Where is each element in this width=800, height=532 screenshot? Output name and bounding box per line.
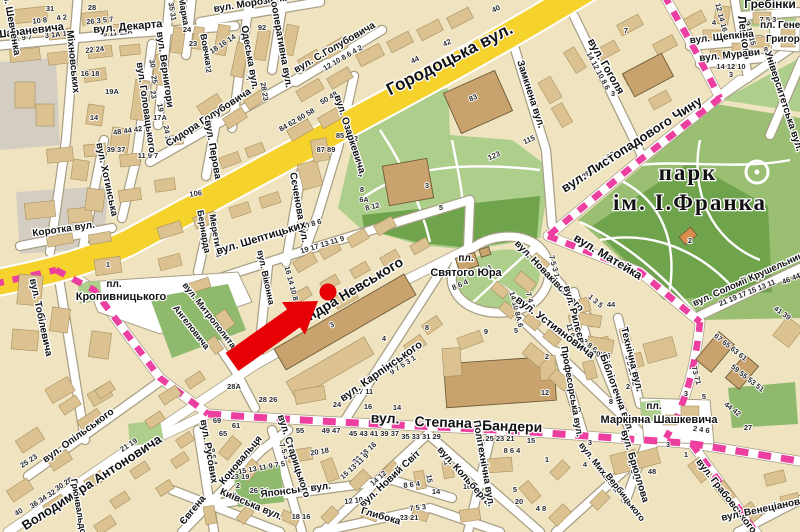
building — [49, 307, 70, 333]
house-number: 3 — [729, 70, 733, 79]
house-number: 25 — [149, 75, 159, 85]
house-number: 18 16 — [292, 512, 311, 521]
house-number: 1 — [684, 450, 688, 459]
house-number: 23 21 — [400, 513, 419, 522]
house-number: 3 — [666, 440, 670, 449]
building — [442, 347, 462, 376]
house-number: 49 47 — [322, 426, 341, 435]
house-number: 8 — [360, 185, 364, 194]
house-number: 31 — [46, 4, 54, 13]
house-number: 20 — [515, 497, 523, 506]
building — [24, 200, 56, 219]
house-number: 92 — [258, 23, 266, 32]
house-number: 16 18 — [81, 69, 100, 78]
house-number: 28 26 — [259, 395, 278, 404]
house-number: 48 — [648, 467, 656, 476]
house-number: 5 — [514, 326, 518, 335]
house-number: 4 8 — [536, 504, 546, 513]
house-number: 1 — [106, 260, 110, 269]
house-number: 14 — [90, 113, 99, 122]
house-number: 87 89 — [317, 145, 336, 154]
house-number: 8 — [425, 323, 429, 332]
house-number: 39 37 — [107, 145, 126, 154]
street-label: пл. — [458, 253, 473, 264]
building — [11, 329, 39, 351]
house-number: 2 — [236, 481, 240, 490]
house-number: 69 — [213, 416, 221, 425]
house-number: 27 — [744, 423, 752, 432]
building — [15, 82, 35, 108]
street-label: пл. — [106, 279, 121, 290]
street-label: Степана — [414, 413, 472, 431]
house-number: 7 — [624, 26, 628, 35]
house-number: 106 — [189, 188, 203, 199]
house-number: 45 43 41 39 37 — [349, 429, 399, 438]
house-number: 2 — [545, 352, 549, 361]
location-dot-icon[interactable] — [320, 284, 337, 301]
street-label: Гребінки — [744, 0, 796, 11]
house-number: 24 — [183, 25, 192, 34]
building — [120, 44, 141, 56]
house-number: 44 — [607, 300, 616, 309]
street-label: ім. І.Франка — [613, 190, 767, 215]
house-number: 9 — [484, 327, 488, 336]
house-number: 23 — [189, 39, 197, 48]
building — [85, 188, 106, 212]
building — [154, 178, 175, 193]
house-number: 15 — [527, 436, 535, 445]
street-label: пл. — [646, 401, 661, 412]
house-number: 65 — [219, 429, 227, 438]
house-number: 55 — [296, 426, 304, 435]
house-number: 8 6 4 — [504, 446, 522, 455]
house-number: 3 — [684, 389, 688, 398]
street-label: Маркіяна Шашкевича — [601, 414, 719, 426]
house-number: 5 — [439, 203, 443, 212]
building — [46, 147, 73, 164]
house-number: 85 — [336, 131, 344, 140]
house-number: 25 23 21 — [485, 434, 514, 443]
house-number: 30 — [147, 59, 157, 69]
street-label: Святого Юра — [430, 267, 502, 279]
street-label: Бандери — [482, 417, 543, 435]
house-number: 17А — [153, 113, 167, 122]
house-number: 61 — [232, 421, 240, 430]
house-number: 24 — [333, 400, 342, 409]
street-label: Григоренка — [766, 34, 800, 45]
house-number: 5 — [513, 485, 517, 494]
house-number: 12 — [541, 388, 549, 397]
street-label: пл. Генерала — [760, 20, 800, 31]
house-number: 2 — [688, 236, 692, 245]
house-number: 5 — [702, 392, 706, 401]
house-number: 1 — [545, 455, 549, 464]
house-number: 14 — [432, 487, 441, 496]
street-label: Кропивницького — [76, 291, 167, 303]
house-number: 19А — [105, 87, 119, 96]
house-number: 15 — [424, 474, 434, 484]
house-number: 2 — [626, 382, 630, 391]
building — [459, 508, 480, 523]
street-label: вул. — [371, 410, 400, 427]
house-number: 28А — [227, 382, 241, 391]
building — [88, 331, 111, 360]
house-number: 28 — [88, 3, 96, 12]
building — [488, 457, 513, 473]
city-map[interactable]: 10 84 2311 9 73 1А 12826 3 5 79 11 11А35… — [0, 0, 800, 532]
map-canvas[interactable]: 10 84 2311 9 73 1А 12826 3 5 79 11 11А35… — [0, 0, 800, 532]
building — [71, 159, 90, 181]
house-number: 35 33 31 29 — [401, 432, 441, 441]
street-label: парк — [659, 160, 718, 185]
house-number: 3 — [425, 181, 429, 190]
building — [36, 104, 54, 126]
